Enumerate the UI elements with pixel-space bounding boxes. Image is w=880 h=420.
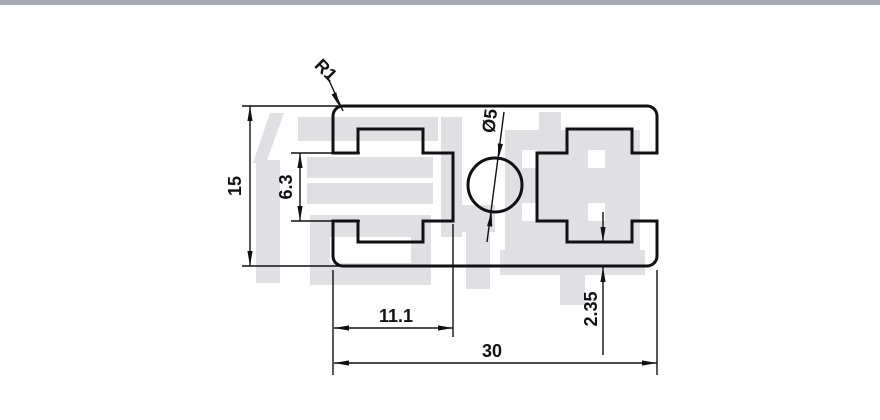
dim-text-slot-opening: 6.3 — [276, 174, 296, 199]
watermark-text-shapes — [253, 112, 645, 305]
cad-drawing-canvas: 15 6.3 R1 Ø5 — [0, 0, 880, 420]
dim-text-wall-thickness: 2.35 — [581, 291, 601, 326]
dim-text-hole-diameter: Ø5 — [478, 108, 501, 134]
dim-text-corner-radius: R1 — [311, 55, 341, 85]
dimensions: 15 6.3 R1 Ø5 — [225, 55, 657, 375]
dim-corner-radius: R1 — [311, 55, 343, 111]
dim-text-width: 30 — [482, 341, 502, 361]
dim-text-height: 15 — [225, 176, 245, 196]
dim-slot-depth: 11.1 — [333, 224, 453, 375]
dim-text-slot-depth: 11.1 — [379, 306, 413, 326]
drawing-svg: 15 6.3 R1 Ø5 — [0, 0, 880, 420]
